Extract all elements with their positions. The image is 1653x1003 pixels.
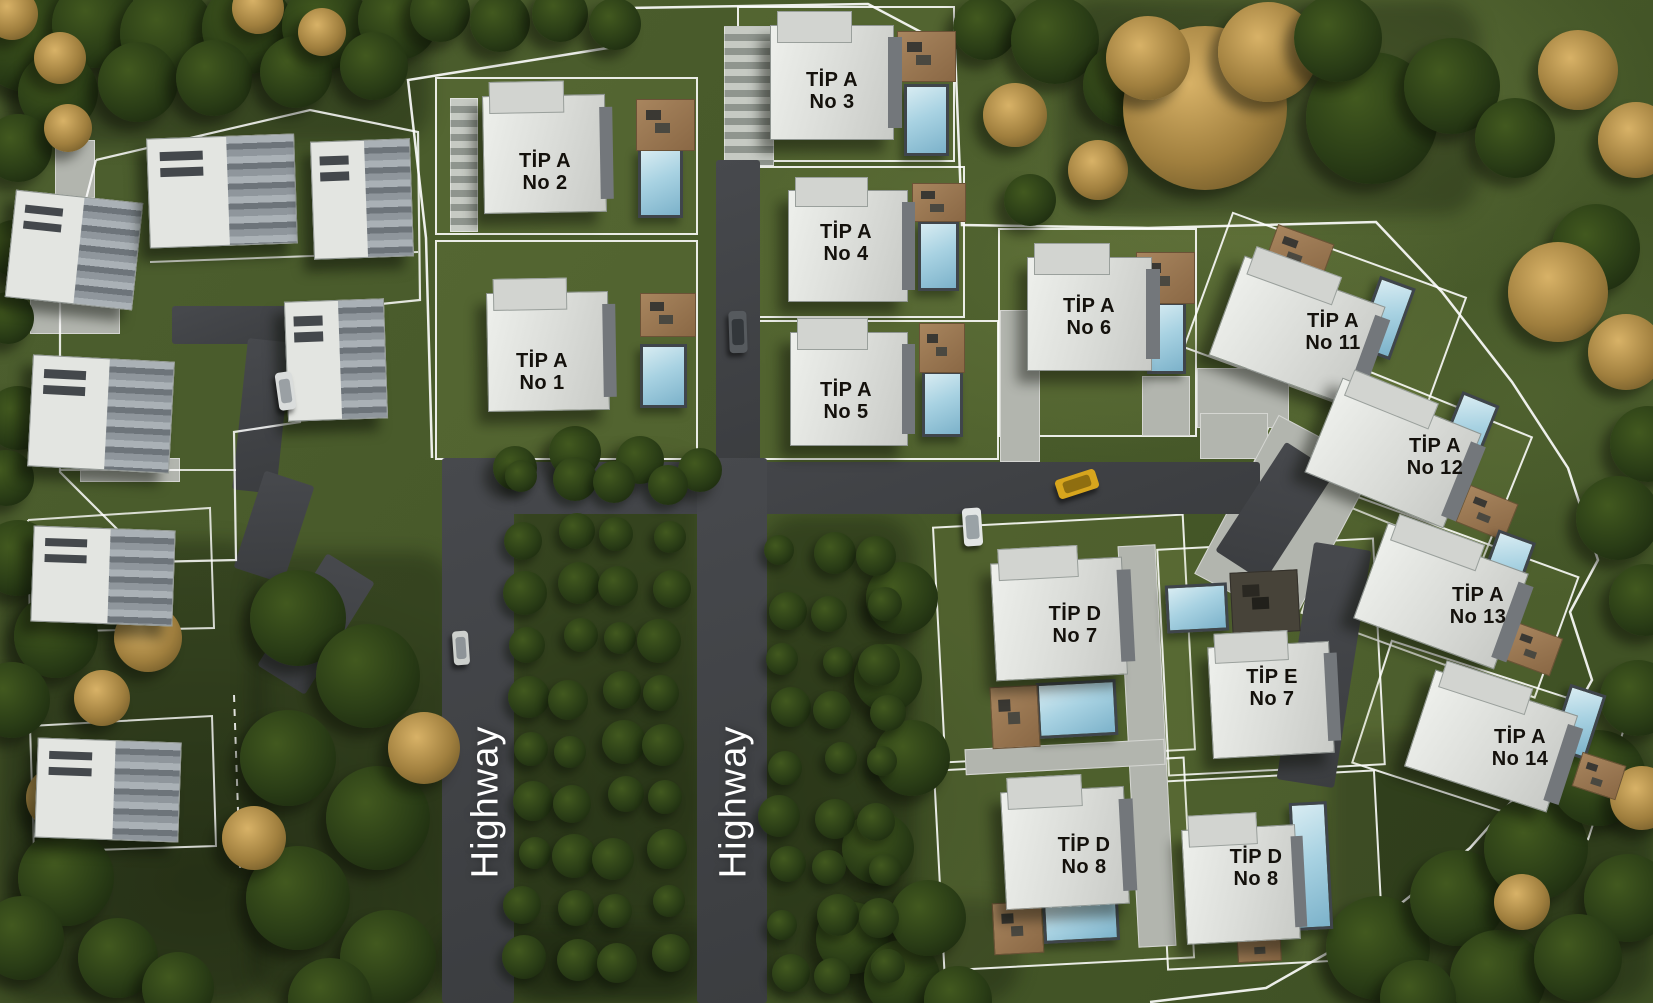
villa-type-label: TİP D (1049, 603, 1102, 625)
villa-type-label: TİP A (1450, 584, 1506, 606)
labels-layer: TİP ANo 2TİP ANo 1TİP ANo 3TİP ANo 4TİP … (0, 0, 1653, 1003)
villa-tip-d-no-8-west-label: TİP DNo 8 (1058, 834, 1111, 878)
villa-type-label: TİP D (1058, 834, 1111, 856)
villa-type-label: TİP A (519, 150, 571, 172)
villa-number-label: No 7 (1246, 688, 1298, 710)
villa-number-label: No 11 (1305, 332, 1360, 354)
villa-tip-a-no-4-label: TİP ANo 4 (820, 221, 872, 265)
villa-number-label: No 7 (1049, 625, 1102, 647)
site-plan-render: TİP ANo 2TİP ANo 1TİP ANo 3TİP ANo 4TİP … (0, 0, 1653, 1003)
villa-tip-a-no-5-label: TİP ANo 5 (820, 379, 872, 423)
villa-number-label: No 13 (1450, 606, 1506, 628)
villa-type-label: TİP E (1246, 666, 1298, 688)
villa-tip-a-no-1-label: TİP ANo 1 (516, 350, 568, 394)
villa-tip-a-no-14-label: TİP ANo 14 (1492, 726, 1548, 770)
villa-number-label: No 12 (1407, 457, 1463, 479)
villa-type-label: TİP A (806, 69, 858, 91)
villa-tip-a-no-6-label: TİP ANo 6 (1063, 295, 1115, 339)
villa-tip-e-no-7-label: TİP ENo 7 (1246, 666, 1298, 710)
villa-tip-a-no-2-label: TİP ANo 2 (519, 150, 571, 194)
highway-label-east: Highway (713, 726, 756, 879)
villa-tip-a-no-3-label: TİP ANo 3 (806, 69, 858, 113)
villa-number-label: No 2 (519, 172, 571, 194)
villa-type-label: TİP A (820, 379, 872, 401)
villa-number-label: No 8 (1230, 868, 1283, 890)
villa-type-label: TİP A (1305, 310, 1360, 332)
villa-number-label: No 1 (516, 372, 568, 394)
villa-number-label: No 14 (1492, 748, 1548, 770)
villa-type-label: TİP A (516, 350, 568, 372)
villa-tip-d-no-7-label: TİP DNo 7 (1049, 603, 1102, 647)
villa-number-label: No 8 (1058, 856, 1111, 878)
villa-tip-a-no-11-label: TİP ANo 11 (1305, 310, 1360, 354)
villa-tip-a-no-12-label: TİP ANo 12 (1407, 435, 1463, 479)
villa-type-label: TİP A (820, 221, 872, 243)
villa-type-label: TİP A (1407, 435, 1463, 457)
villa-number-label: No 6 (1063, 317, 1115, 339)
villa-number-label: No 5 (820, 401, 872, 423)
villa-type-label: TİP A (1492, 726, 1548, 748)
villa-tip-d-no-8-east-label: TİP DNo 8 (1230, 846, 1283, 890)
villa-tip-a-no-13-label: TİP ANo 13 (1450, 584, 1506, 628)
villa-type-label: TİP D (1230, 846, 1283, 868)
villa-type-label: TİP A (1063, 295, 1115, 317)
villa-number-label: No 4 (820, 243, 872, 265)
villa-number-label: No 3 (806, 91, 858, 113)
highway-label-west: Highway (465, 726, 508, 879)
